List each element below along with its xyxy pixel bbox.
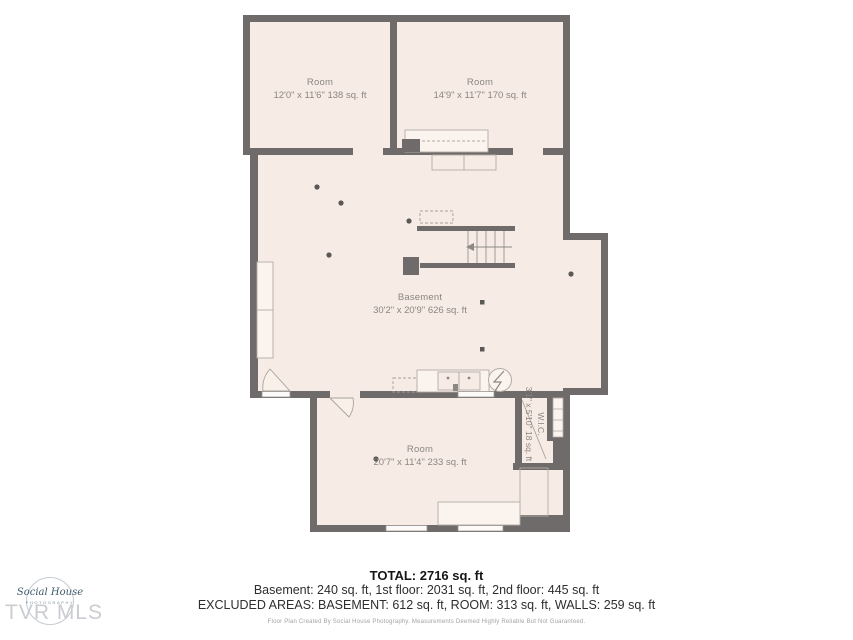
- wall: [390, 22, 397, 152]
- wall: [563, 391, 570, 532]
- wall: [601, 233, 608, 395]
- room-name: Room: [397, 76, 563, 89]
- floor-area-basement: [254, 152, 567, 395]
- wall: [243, 15, 250, 155]
- wall: [310, 391, 317, 532]
- wall: [563, 15, 570, 240]
- wall: [383, 148, 513, 155]
- room-dimensions: 30'2" x 20'9" 626 sq. ft: [320, 304, 520, 317]
- wall: [243, 148, 353, 155]
- room-label-bottom: Room 20'7" x 11'4" 233 sq. ft: [330, 443, 510, 469]
- wall: [250, 148, 258, 398]
- room-label-basement: Basement 30'2" x 20'9" 626 sq. ft: [320, 291, 520, 317]
- room-dimensions: 14'9" x 11'7" 170 sq. ft: [397, 89, 563, 102]
- area-summary: TOTAL: 2716 sq. ft Basement: 240 sq. ft,…: [0, 568, 853, 625]
- room-dimensions: 12'0" x 11'6" 138 sq. ft: [250, 89, 390, 102]
- disclaimer-text: Floor Plan Created By Social House Photo…: [0, 619, 853, 625]
- floor-areas-text: Basement: 240 sq. ft, 1st floor: 2031 sq…: [0, 583, 853, 598]
- wall: [543, 148, 570, 155]
- wall: [243, 15, 570, 22]
- room-label-wic: W.I.C. 3'1" x 5'10" 18 sq. ft: [521, 376, 547, 472]
- wall: [250, 391, 317, 398]
- room-dimensions: 3'1" x 5'10" 18 sq. ft: [523, 376, 535, 472]
- room-name: W.I.C.: [535, 376, 547, 472]
- floor-area-basement-extension: [567, 236, 605, 392]
- excluded-areas-text: EXCLUDED AREAS: BASEMENT: 612 sq. ft, RO…: [0, 598, 853, 613]
- total-area-text: TOTAL: 2716 sq. ft: [0, 568, 853, 583]
- floor-plan-page: Room 12'0" x 11'6" 138 sq. ft Room 14'9"…: [0, 0, 853, 640]
- room-name: Basement: [320, 291, 520, 304]
- room-name: Room: [330, 443, 510, 456]
- wall: [553, 437, 563, 463]
- room-name: Room: [250, 76, 390, 89]
- room-label-top-right: Room 14'9" x 11'7" 170 sq. ft: [397, 76, 563, 102]
- room-dimensions: 20'7" x 11'4" 233 sq. ft: [330, 456, 510, 469]
- room-label-top-left: Room 12'0" x 11'6" 138 sq. ft: [250, 76, 390, 102]
- wall: [520, 515, 563, 532]
- wall: [547, 395, 553, 441]
